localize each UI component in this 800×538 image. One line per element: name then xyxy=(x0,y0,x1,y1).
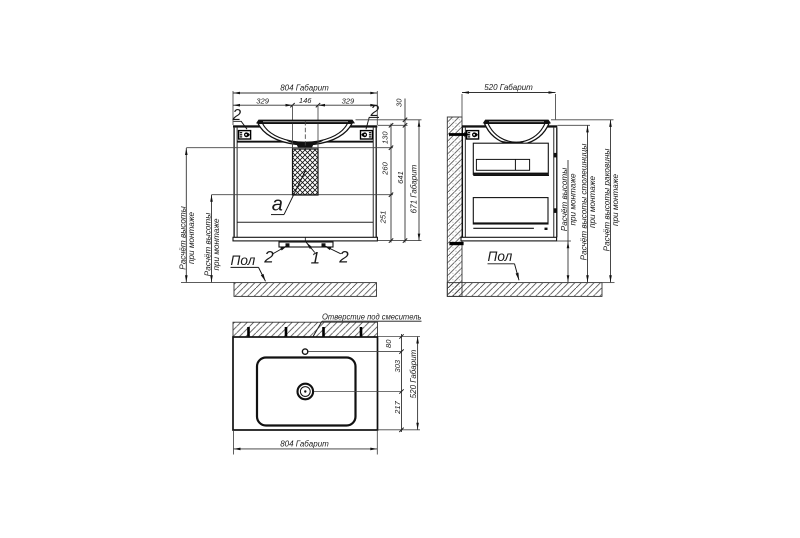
svg-text:329: 329 xyxy=(256,96,269,105)
svg-text:2: 2 xyxy=(263,248,274,267)
svg-text:при монтаже: при монтаже xyxy=(187,212,196,264)
svg-text:80: 80 xyxy=(384,339,393,348)
svg-text:130: 130 xyxy=(380,131,389,144)
svg-text:260: 260 xyxy=(380,161,389,175)
svg-text:при монтаже: при монтаже xyxy=(569,173,578,225)
svg-text:671 Габарит: 671 Габарит xyxy=(410,164,419,213)
svg-text:303: 303 xyxy=(393,359,402,372)
svg-text:329: 329 xyxy=(342,96,355,105)
svg-text:520 Габарит: 520 Габарит xyxy=(409,349,418,398)
svg-text:146: 146 xyxy=(299,96,312,105)
svg-text:30: 30 xyxy=(394,98,403,107)
svg-text:804 Габарит: 804 Габарит xyxy=(280,440,329,449)
svg-text:641: 641 xyxy=(396,171,405,184)
svg-text:2: 2 xyxy=(338,248,349,267)
svg-text:251: 251 xyxy=(379,211,388,225)
svg-text:Отверстие под смеситель: Отверстие под смеситель xyxy=(322,312,422,321)
svg-text:при монтаже: при монтаже xyxy=(611,174,620,226)
svg-text:520 Габарит: 520 Габарит xyxy=(484,83,533,92)
svg-text:Пол: Пол xyxy=(488,249,513,264)
svg-text:a: a xyxy=(272,194,283,216)
svg-text:Пол: Пол xyxy=(231,253,256,268)
svg-text:1: 1 xyxy=(311,249,320,268)
svg-text:при монтаже: при монтаже xyxy=(588,176,597,228)
svg-text:804 Габарит: 804 Габарит xyxy=(280,84,329,93)
svg-text:при монтаже: при монтаже xyxy=(212,218,221,270)
svg-text:217: 217 xyxy=(393,400,402,414)
